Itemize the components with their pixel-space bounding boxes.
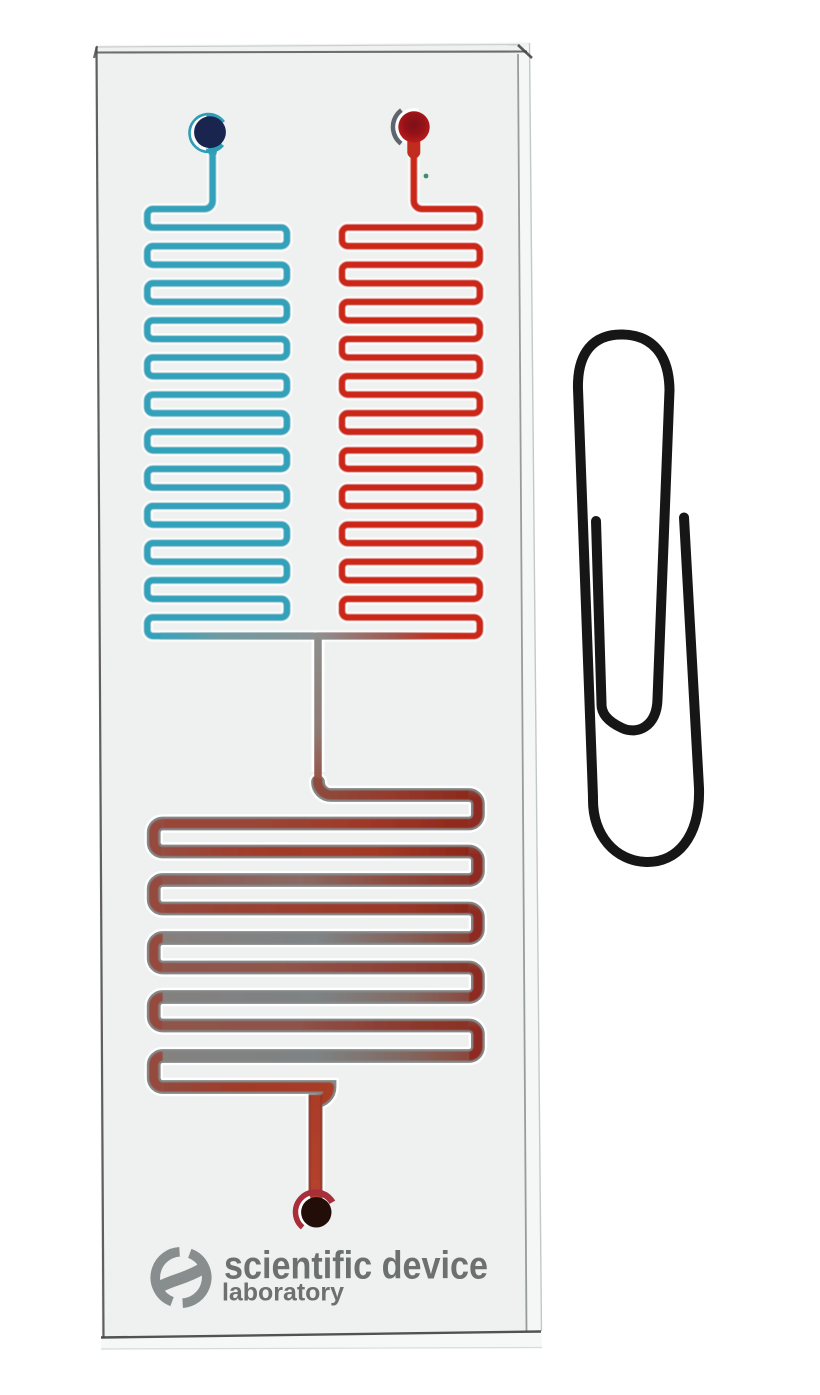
svg-text:laboratory: laboratory — [222, 1279, 344, 1307]
